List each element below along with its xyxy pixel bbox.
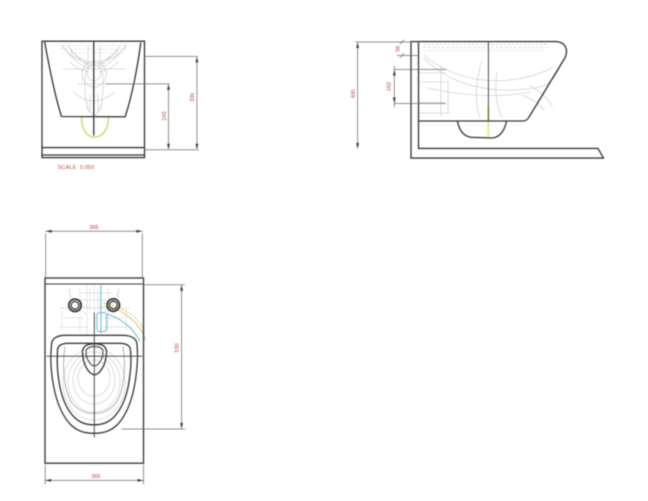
svg-text:56: 56 bbox=[396, 46, 402, 52]
svg-text:245: 245 bbox=[162, 111, 168, 120]
svg-text:530: 530 bbox=[175, 343, 181, 352]
svg-text:365: 365 bbox=[91, 474, 100, 480]
svg-text:162: 162 bbox=[387, 82, 393, 91]
svg-text:365: 365 bbox=[89, 225, 98, 231]
svg-text:400: 400 bbox=[351, 89, 357, 98]
svg-text:330: 330 bbox=[190, 93, 196, 102]
svg-text:SCALE 0.050: SCALE 0.050 bbox=[58, 165, 95, 171]
